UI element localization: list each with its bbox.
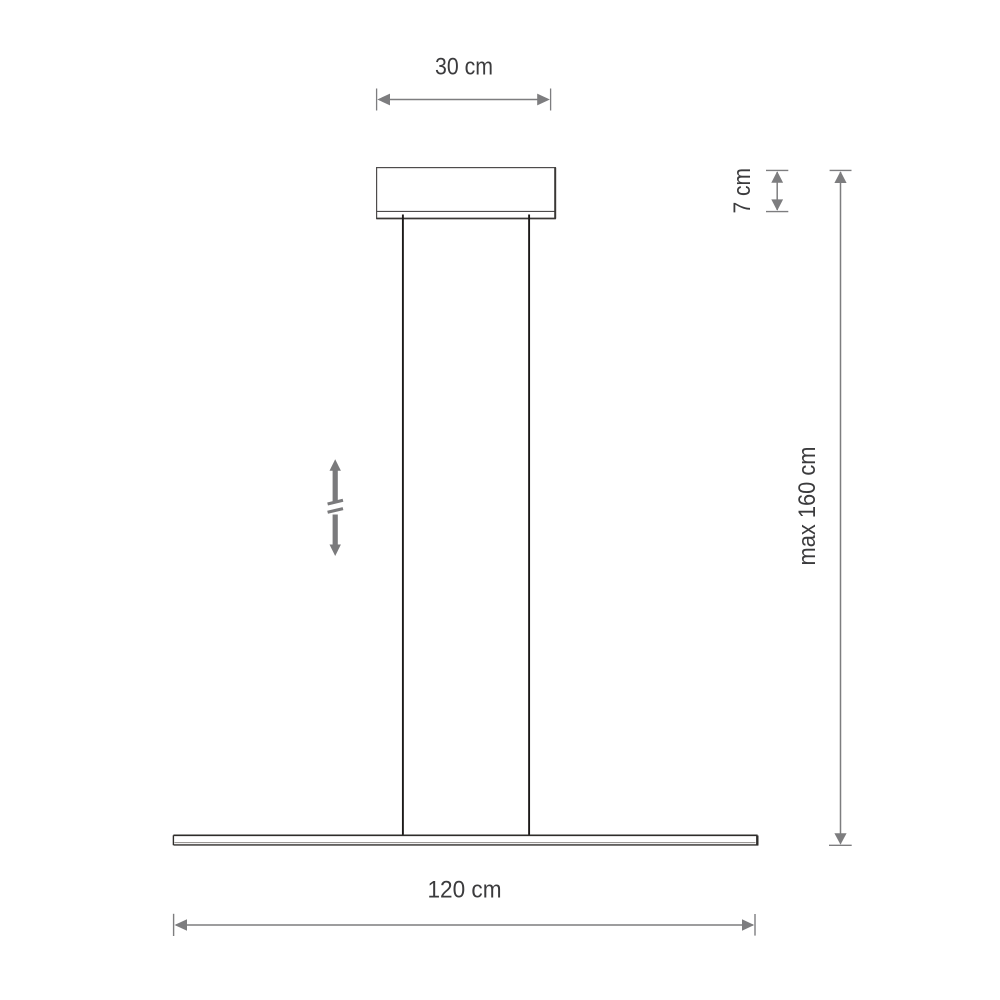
svg-text:7 cm: 7 cm — [729, 168, 756, 214]
svg-text:max 160 cm: max 160 cm — [794, 447, 821, 566]
svg-text:30 cm: 30 cm — [435, 54, 493, 81]
svg-text:120 cm: 120 cm — [428, 877, 502, 904]
